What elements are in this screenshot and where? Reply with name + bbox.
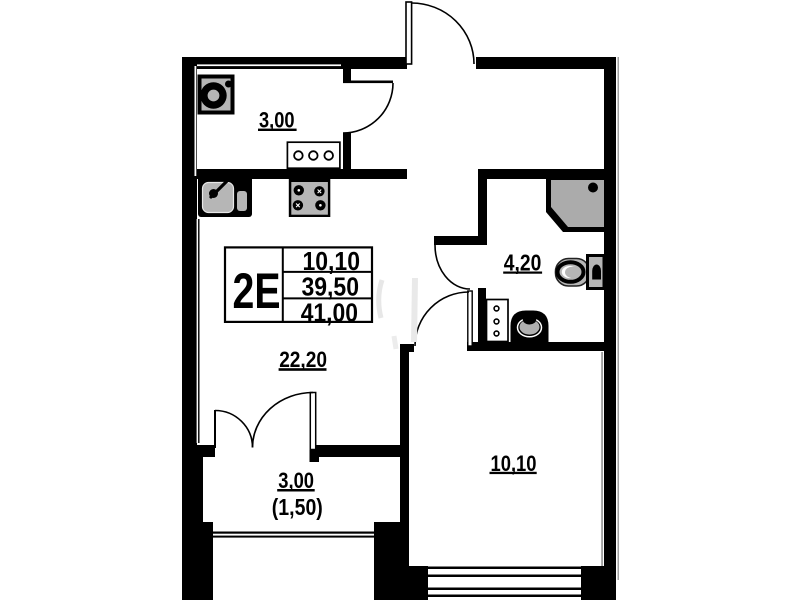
- svg-text:(1,50): (1,50): [272, 494, 323, 520]
- svg-text:2E: 2E: [233, 263, 281, 319]
- svg-text:41,00: 41,00: [301, 297, 358, 327]
